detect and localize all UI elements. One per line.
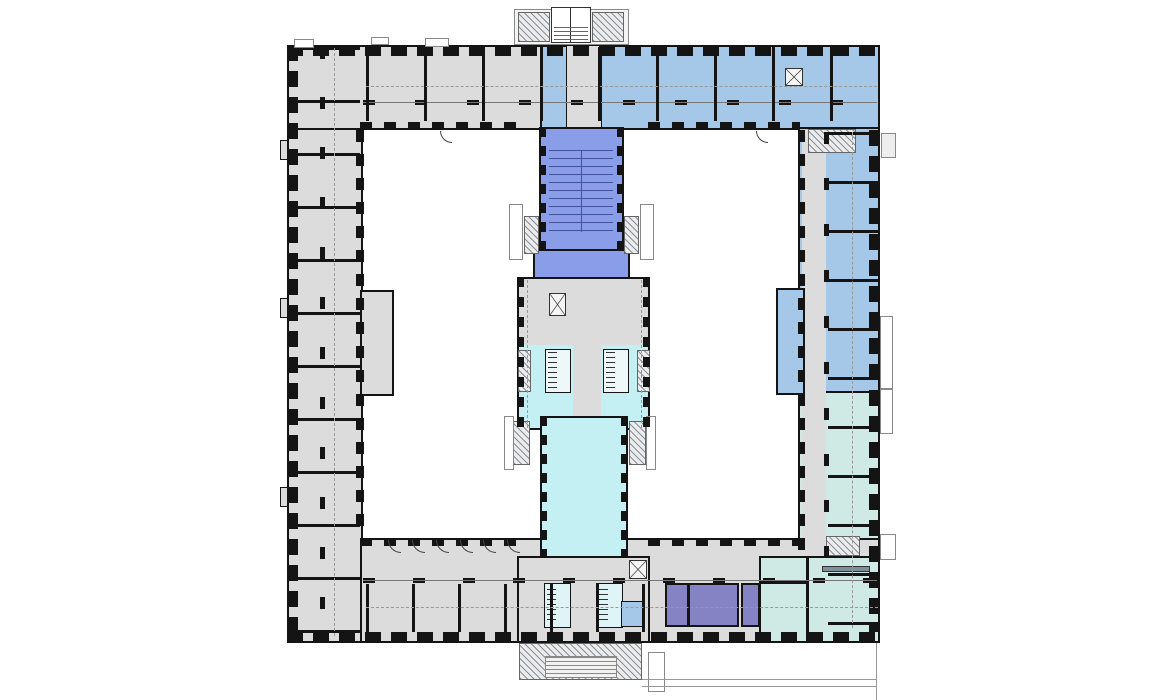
top-wing-east — [540, 45, 880, 130]
wall-east — [869, 130, 880, 632]
cyan-hall — [540, 416, 628, 558]
toilet-room-right — [603, 349, 629, 393]
line-bottom-corridor — [363, 580, 877, 581]
wall-right-inner — [824, 132, 829, 558]
wall-stair-west — [539, 127, 546, 251]
left-wing — [287, 45, 363, 643]
porch-hatch — [519, 643, 642, 680]
small-blue-room — [621, 601, 643, 627]
arcade-door-arc-1 — [388, 540, 401, 553]
central-block — [517, 277, 650, 430]
stair-center-line — [581, 150, 582, 232]
west-bump-1 — [280, 140, 288, 160]
block-stair-hatch-left — [518, 350, 531, 392]
wall-leftwing-east — [356, 130, 364, 538]
door-arc-top-2 — [756, 131, 768, 143]
portico-entry — [551, 7, 591, 43]
staircase-landing — [533, 249, 630, 279]
wall-court-top-left — [360, 122, 520, 130]
arcade-door-arc-4 — [460, 540, 473, 553]
porch-side-box — [648, 652, 665, 692]
bay-east-top — [881, 133, 896, 158]
wall-bottom-corridor — [363, 578, 877, 583]
bottom-toilet-right — [596, 583, 623, 628]
grand-staircase — [539, 127, 624, 251]
bottom-toilet-left — [544, 583, 571, 628]
terrace-line-v — [876, 643, 877, 700]
wall-south — [287, 632, 880, 643]
right-stair-top-hatch — [808, 129, 856, 153]
right-wing-upper — [798, 127, 880, 393]
portico-base — [514, 9, 629, 45]
door-arc-top-1 — [440, 131, 452, 143]
balcony-east-upper — [880, 316, 893, 389]
porch-steps — [545, 656, 617, 678]
dash-left-wing — [334, 48, 335, 636]
right-stair-bottom-hatch — [826, 536, 860, 556]
wall-stair-east — [617, 127, 624, 251]
wall-court-bottom-left — [360, 538, 520, 546]
elevator-top — [785, 68, 803, 86]
purple-room-small — [741, 583, 760, 627]
roof-mark-1 — [294, 39, 314, 48]
right-wing-lower — [798, 391, 880, 632]
elevator-central — [549, 293, 566, 316]
balcony-east-mid — [880, 389, 893, 434]
wall-court-top-right — [648, 122, 800, 130]
portico-entry-divider — [570, 7, 571, 43]
roof-mark-2 — [371, 37, 389, 45]
right-corridor — [802, 130, 826, 558]
teal-divider-h — [759, 581, 807, 584]
dash-right-wing — [852, 132, 853, 628]
wall-left-inner — [320, 47, 325, 641]
right-courtyard-bay — [776, 288, 805, 395]
central-cyan-band — [519, 345, 648, 428]
portico-stair-hatch-right — [592, 12, 624, 42]
dash-top-wing — [366, 86, 877, 87]
west-bump-2 — [280, 298, 288, 318]
staircase-side-hatch-right — [624, 216, 639, 254]
bottom-toilet-fixtures-right — [599, 589, 608, 623]
elevator-bottom — [629, 560, 647, 579]
dividers-left-rooms — [290, 47, 360, 641]
teal-room-block — [759, 556, 880, 643]
dividers-top-rooms — [366, 47, 877, 121]
wall-hall-west — [540, 416, 547, 558]
staircase-side-hatch-left — [524, 216, 539, 254]
hall-terrace-left — [504, 416, 514, 470]
line-top-wing — [363, 102, 877, 103]
hall-stair-hatch-right — [629, 421, 646, 465]
portico-steps — [554, 27, 588, 42]
terrace-line-1 — [642, 679, 877, 680]
dividers-bottom-rooms — [366, 584, 650, 632]
divider-top-wing — [363, 100, 877, 105]
wall-north — [287, 45, 880, 56]
arcade-door-arc-3 — [436, 540, 449, 553]
dash-bottom-wing — [366, 607, 878, 608]
bay-east-bottom — [880, 534, 896, 560]
bottom-toilet-fixtures-left — [547, 589, 556, 623]
wall-spine-west — [517, 277, 524, 430]
wall-rightwing-west — [798, 130, 805, 558]
central-corridor — [573, 279, 601, 428]
arcade-door-arc-5 — [483, 540, 496, 553]
arcade-door-arc-2 — [412, 540, 425, 553]
bottom-wing — [360, 538, 880, 643]
roof-mark-3 — [425, 38, 449, 47]
toilet-room-left — [545, 349, 571, 393]
portico-stair-hatch-left — [518, 12, 550, 42]
arcade-door-arc-6 — [507, 540, 520, 553]
wall-spine-east — [643, 277, 650, 430]
dividers-right-rooms — [828, 132, 878, 630]
staircase-terrace-left — [509, 204, 523, 260]
hall-stair-hatch-left — [513, 421, 530, 465]
corner-room-table — [822, 566, 870, 572]
entrance-hall-top — [566, 45, 602, 129]
hall-terrace-right — [646, 416, 656, 470]
dash-central-west — [527, 280, 528, 428]
wall-hall-east — [621, 416, 628, 558]
staircase-terrace-right — [640, 204, 654, 260]
terrace-line-2 — [642, 686, 877, 687]
teal-divider-v — [806, 556, 809, 643]
left-courtyard-bay — [360, 290, 394, 396]
purple-room-large — [665, 583, 739, 627]
purple-room-divider — [687, 583, 690, 627]
west-bump-3 — [280, 487, 288, 507]
central-bottom-block — [517, 556, 650, 643]
toilet-fixtures-right — [606, 352, 615, 390]
wall-west — [287, 45, 298, 643]
top-wing-west — [287, 45, 543, 130]
block-stair-hatch-right — [637, 350, 650, 392]
wall-court-bottom-right — [648, 538, 800, 546]
floor-plan-image — [0, 0, 1170, 700]
toilet-fixtures-left — [548, 352, 557, 390]
dash-central-east — [641, 280, 642, 428]
stair-treads — [549, 150, 613, 232]
